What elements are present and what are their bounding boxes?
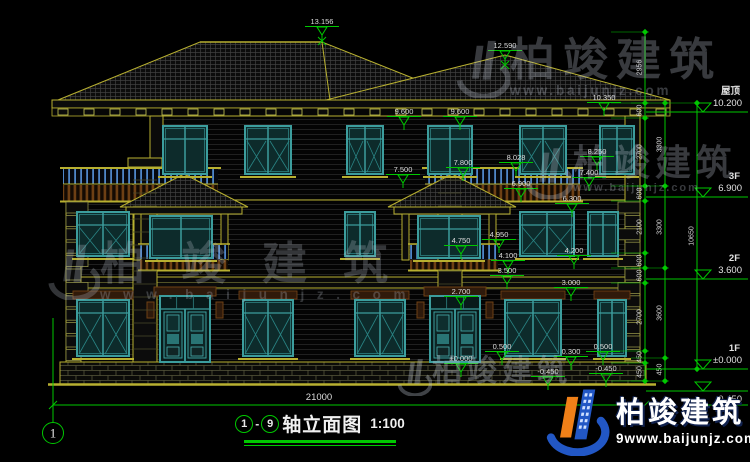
svg-text:8.028: 8.028 (507, 153, 526, 162)
svg-text:4.200: 4.200 (565, 246, 584, 255)
dimension-label: 3300 (657, 219, 664, 235)
svg-text:13.156: 13.156 (311, 17, 334, 26)
elevation-marker: 7.400 (572, 168, 606, 191)
dimension-chain: 330033003600450 (631, 100, 669, 384)
elevation-marker: 7.800 (446, 158, 480, 181)
dimension-chain: 10650 (663, 100, 701, 372)
axis-range-dash: - (255, 417, 259, 431)
elevation-marker: 8.028 (499, 153, 533, 176)
svg-text:10.350: 10.350 (593, 93, 616, 102)
elevation-marker: 13.156 (305, 17, 339, 45)
elevation-marker: ±0.000 (444, 354, 478, 377)
svg-text:21000: 21000 (306, 392, 332, 403)
elevation-marker: 9.600 (443, 107, 477, 130)
axis-grid-line-1: 1 (43, 318, 64, 444)
svg-text:3.500: 3.500 (498, 266, 517, 275)
svg-text:1F: 1F (729, 343, 740, 354)
svg-text:7.800: 7.800 (454, 158, 473, 167)
svg-text:6.300: 6.300 (563, 194, 582, 203)
svg-text:0.500: 0.500 (594, 342, 613, 351)
svg-text:6.900: 6.900 (718, 183, 742, 194)
drawing-title-text: 轴立面图 (282, 410, 362, 437)
svg-text:4.750: 4.750 (452, 236, 471, 245)
brand-url-line: 9www.baijunjz.com (616, 431, 750, 446)
svg-text:12.590: 12.590 (494, 41, 517, 50)
elevation-marker: 8.250 (580, 147, 614, 170)
elevation-marker: 6.900 (504, 179, 538, 202)
svg-text:3.600: 3.600 (718, 265, 742, 276)
dimension-label: 600 (637, 188, 644, 200)
svg-text:9.600: 9.600 (395, 107, 414, 116)
svg-text:屋顶: 屋顶 (721, 86, 741, 97)
svg-text:0.500: 0.500 (493, 342, 512, 351)
svg-text:4.950: 4.950 (490, 230, 509, 239)
svg-text:7.400: 7.400 (580, 168, 599, 177)
svg-text:0.300: 0.300 (562, 347, 581, 356)
dimension-label: 2700 (637, 309, 644, 325)
drawing-canvas: 13.15612.59010.3509.6009.6008.2508.0287.… (0, 0, 750, 462)
svg-text:-0.450: -0.450 (537, 367, 558, 376)
elevation-marker: 3.000 (554, 278, 588, 301)
svg-text:±0.000: ±0.000 (450, 354, 473, 363)
elevation-marker: 2.700 (444, 287, 478, 310)
dimension-label: 3300 (657, 137, 664, 153)
elevation-marker: 3.500 (490, 266, 524, 289)
axis-bubble-end: 9 (261, 415, 279, 433)
svg-text:8.250: 8.250 (588, 147, 607, 156)
elevation-marker: 10.350 (587, 93, 621, 116)
svg-text:9.600: 9.600 (451, 107, 470, 116)
dimension-chain: 2956600270060021006006002700450450 (611, 29, 649, 384)
elevation-marker: 9.600 (387, 107, 421, 130)
title-underline-thin (244, 445, 396, 446)
svg-text:2F: 2F (729, 253, 740, 264)
dimension-label: 450 (637, 366, 644, 378)
svg-text:10.200: 10.200 (713, 98, 742, 109)
svg-text:7.500: 7.500 (394, 165, 413, 174)
axis-bubble-start: 1 (235, 415, 253, 433)
dimension-label: 2100 (637, 219, 644, 235)
dimension-label: 3600 (657, 305, 664, 321)
svg-text:6.900: 6.900 (512, 179, 531, 188)
brand-name: 柏竣建筑 (616, 399, 750, 428)
elevation-marker: 4.750 (444, 236, 478, 259)
title-underline-thick (244, 440, 396, 443)
elevation-marker: 4.950 (482, 230, 516, 253)
brand-url: www.baijunjz.com (625, 431, 750, 446)
dimension-label: 450 (637, 351, 644, 363)
svg-text:-0.450: -0.450 (595, 364, 616, 373)
svg-text:3.000: 3.000 (562, 278, 581, 287)
dimension-label: 600 (637, 270, 644, 282)
svg-text:±0.000: ±0.000 (713, 355, 742, 366)
elevation-marker: 6.300 (555, 194, 589, 217)
svg-text:4.100: 4.100 (499, 251, 518, 260)
elevation-marker: 12.590 (488, 41, 522, 69)
dimension-label: 10650 (689, 226, 696, 246)
elevation-marker: 0.300 (554, 347, 588, 370)
brand-prefix: 9 (616, 431, 625, 446)
elevation-marker: 7.500 (386, 165, 420, 188)
dimension-label: 2700 (637, 144, 644, 160)
brand-footer: 柏竣建筑 9www.baijunjz.com (538, 384, 750, 461)
dimension-label: 600 (637, 105, 644, 117)
dimension-label: 600 (637, 255, 644, 267)
svg-text:1: 1 (50, 426, 57, 441)
drawing-title-block: 1 - 9 轴立面图 1:100 (240, 410, 400, 446)
brand-logo-icon (538, 384, 612, 461)
elevation-marker: 0.500 (586, 342, 620, 365)
svg-text:3F: 3F (729, 171, 740, 182)
drawing-scale: 1:100 (370, 416, 405, 431)
elevation-marker: 4.200 (557, 246, 591, 269)
elevation-marker: 0.500 (485, 342, 519, 365)
svg-text:2.700: 2.700 (452, 287, 471, 296)
dimension-label: 2956 (637, 60, 644, 76)
